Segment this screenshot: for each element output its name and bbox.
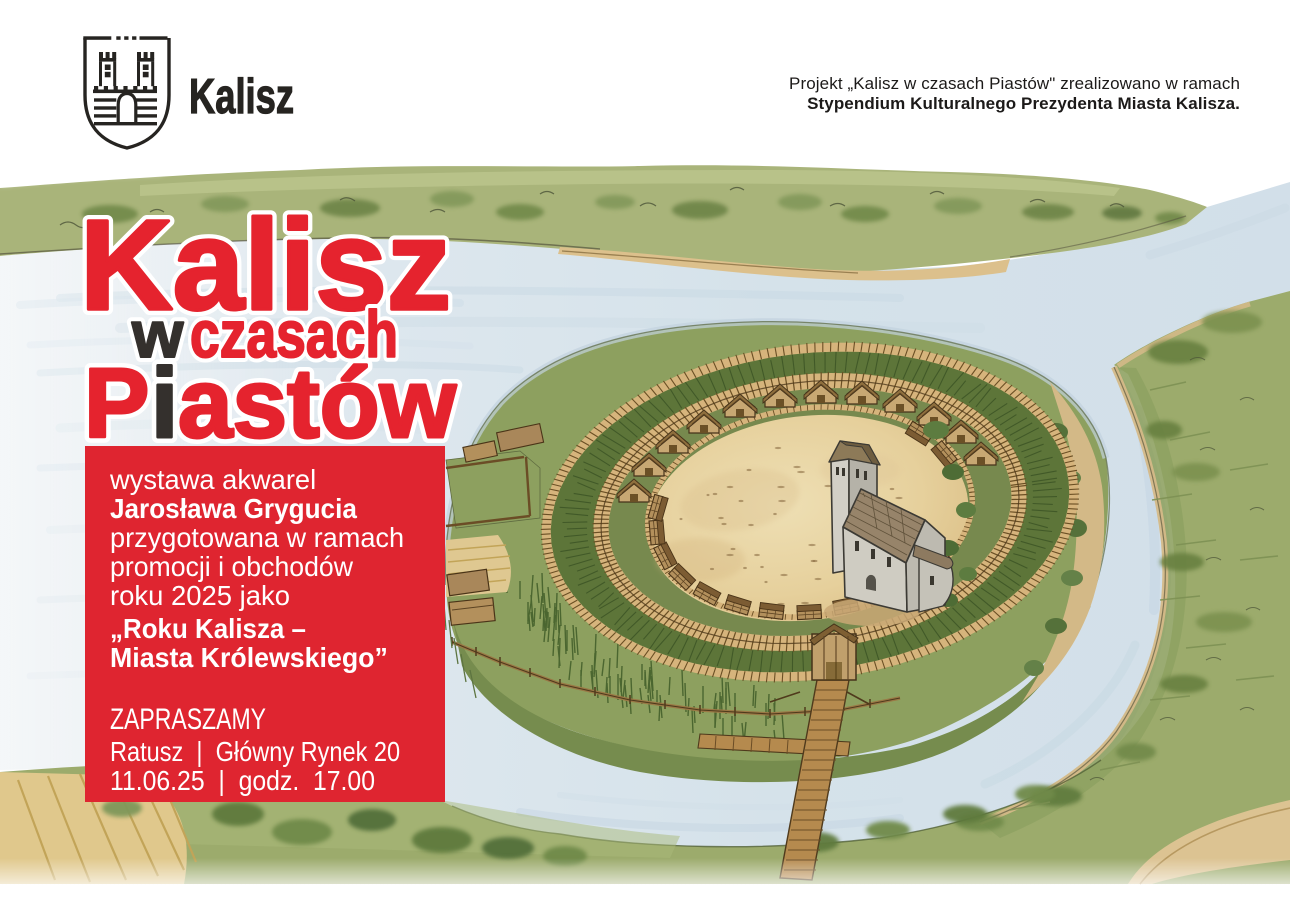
svg-text:astów: astów bbox=[178, 348, 457, 458]
svg-text:i: i bbox=[151, 348, 178, 458]
svg-text:P: P bbox=[84, 348, 149, 458]
svg-text:Kalisz: Kalisz bbox=[189, 70, 294, 124]
